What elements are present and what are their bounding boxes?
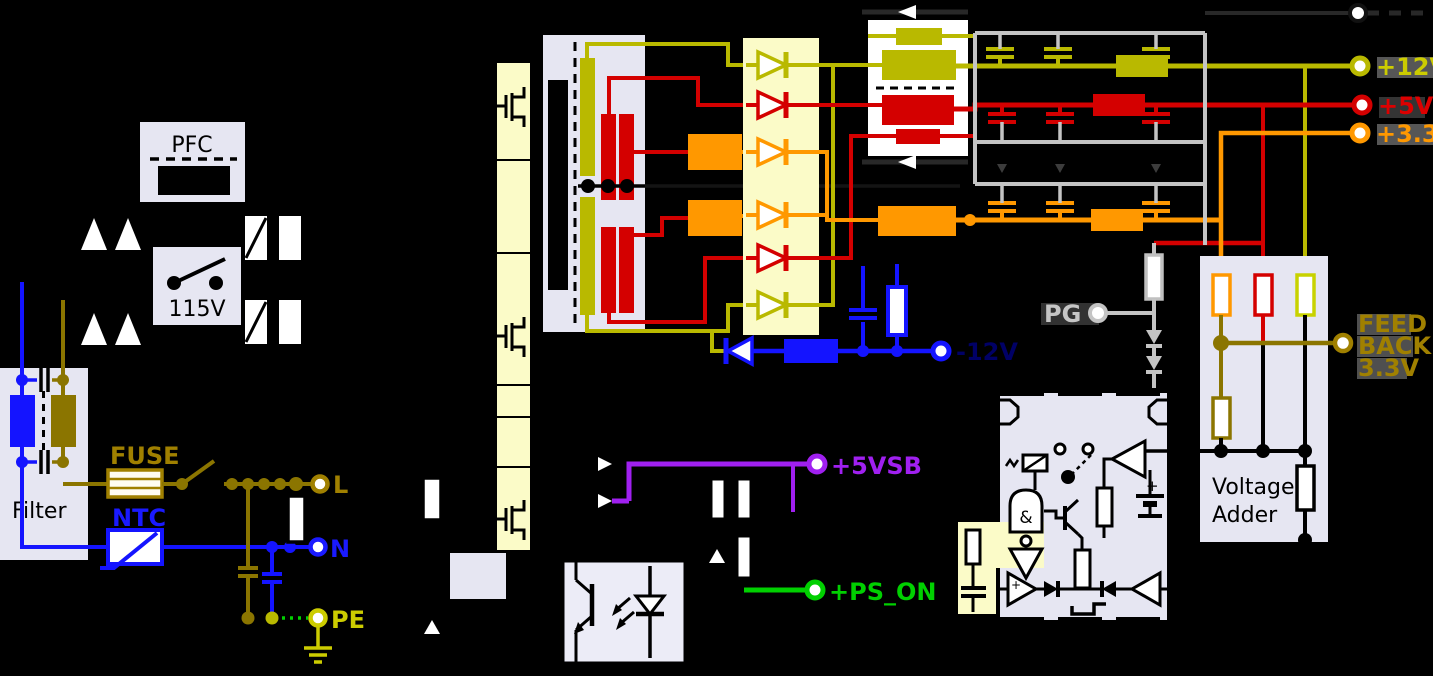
secondary-12v-winding bbox=[580, 197, 595, 315]
p5-label: +5V bbox=[1378, 92, 1433, 120]
terminal-3v3 bbox=[1352, 125, 1368, 141]
feedback-label-3: 3.3V bbox=[1358, 354, 1420, 382]
ground-symbol-icon bbox=[304, 626, 332, 662]
adder-label-1: Voltage bbox=[1212, 475, 1295, 500]
p3v3-label: +3.3V bbox=[1376, 120, 1433, 148]
voltage-selector-switch: 115V bbox=[153, 247, 241, 325]
ps-on-label: +PS_ON bbox=[829, 578, 936, 606]
emi-filter-section: Filter bbox=[0, 282, 88, 560]
ntc-label: NTC bbox=[112, 504, 166, 532]
resistor-neg12 bbox=[888, 287, 906, 335]
resistor bbox=[711, 479, 725, 519]
resistor bbox=[737, 479, 751, 519]
optocoupler bbox=[562, 560, 686, 664]
adder-resistor-12v bbox=[1297, 275, 1314, 315]
atx-psu-schematic: Filter PFC 115V FUSE bbox=[0, 0, 1433, 676]
standby-label: +5VSB bbox=[831, 452, 922, 480]
arrow-left-icon bbox=[898, 155, 916, 169]
terminal-gnd bbox=[1350, 5, 1366, 21]
rail-labels: +12V +5V +3.3V bbox=[1376, 53, 1433, 148]
timing-resistor bbox=[966, 530, 980, 564]
magamp-choke bbox=[688, 200, 742, 236]
primary-switch-strip bbox=[497, 63, 530, 550]
standby-transformer bbox=[450, 553, 506, 599]
current-arrow-icon bbox=[997, 164, 1161, 173]
filter-choke-olive bbox=[51, 395, 76, 447]
pfc-block: PFC bbox=[140, 122, 245, 202]
and-gate-label: & bbox=[1019, 508, 1032, 528]
terminal-feedback bbox=[1335, 335, 1351, 351]
inductor-5v bbox=[1093, 94, 1145, 116]
adder-resistor-gnd bbox=[1297, 466, 1314, 510]
voltage-adder: Voltage Adder bbox=[1165, 256, 1351, 547]
adder-label-2: Adder bbox=[1212, 503, 1278, 528]
fuse-and-line: FUSE L bbox=[63, 442, 348, 499]
bridge-diode-icon bbox=[81, 218, 107, 250]
terminal-line bbox=[313, 477, 328, 492]
terminal-pg bbox=[1090, 305, 1106, 321]
terminal-neg12v bbox=[933, 343, 949, 359]
neutral-label: N bbox=[330, 535, 350, 563]
amp-plus: + bbox=[1011, 578, 1021, 592]
feedback-label-group: FEED BACK 3.3V bbox=[1357, 310, 1432, 382]
secondary-5v-winding bbox=[601, 227, 616, 313]
terminal-5v bbox=[1354, 97, 1370, 113]
terminal-ps-on bbox=[807, 582, 823, 598]
fuse-body bbox=[108, 470, 162, 497]
discharge-resistor bbox=[288, 496, 305, 542]
reference-plus: + bbox=[1146, 477, 1159, 495]
filter-choke-blue bbox=[10, 395, 35, 447]
power-good-network: PG bbox=[1041, 243, 1162, 388]
secondary-5v-winding bbox=[619, 227, 634, 313]
fuse-label: FUSE bbox=[110, 442, 180, 470]
pg-resistor bbox=[1146, 255, 1162, 299]
magamp-choke bbox=[688, 134, 742, 170]
terminal-12v bbox=[1352, 58, 1368, 74]
terminal-neutral bbox=[311, 540, 326, 555]
inductor-neg12 bbox=[784, 339, 838, 363]
pwm-controller-ic: + & + bbox=[958, 393, 1167, 620]
neg12v-label: -12V bbox=[956, 338, 1018, 366]
arrow-up-icon bbox=[424, 620, 440, 634]
ic-resistor bbox=[1075, 550, 1090, 588]
adder-resistor-fb bbox=[1213, 398, 1230, 438]
ic-resistor bbox=[1097, 488, 1112, 526]
arrow-right-icon bbox=[598, 494, 612, 508]
line-label: L bbox=[333, 471, 348, 499]
terminal-earth bbox=[311, 611, 326, 626]
primary-winding bbox=[548, 80, 568, 290]
bridge-diode-icon bbox=[115, 218, 141, 250]
arrow-up-icon bbox=[709, 549, 725, 563]
terminal-5vsb bbox=[809, 456, 825, 472]
p12-label: +12V bbox=[1376, 53, 1433, 81]
voltage-switch-label: 115V bbox=[168, 297, 225, 322]
contact-icon bbox=[1083, 444, 1093, 454]
bulk-capacitors bbox=[243, 214, 303, 346]
arrow-left-icon bbox=[898, 5, 916, 19]
pg-zener-icon bbox=[1146, 356, 1162, 370]
output-choke bbox=[862, 5, 968, 169]
standby-resistor bbox=[423, 478, 441, 520]
resistor bbox=[737, 536, 751, 578]
choke-3v3 bbox=[878, 206, 956, 236]
adder-resistor-5v bbox=[1255, 275, 1272, 315]
diode-neg12-icon bbox=[728, 338, 752, 364]
earth-label: PE bbox=[331, 606, 365, 634]
arrow-right-icon bbox=[598, 457, 612, 471]
pfc-label: PFC bbox=[171, 133, 212, 158]
power-switch-blade bbox=[182, 461, 214, 484]
contact-icon bbox=[1055, 444, 1065, 454]
bridge-diode-icon bbox=[115, 313, 141, 345]
pg-zener-icon bbox=[1146, 330, 1162, 344]
secondary-12v-winding bbox=[580, 58, 595, 176]
pg-label: PG bbox=[1044, 300, 1081, 328]
gnd-terminal-group bbox=[1205, 5, 1433, 21]
bridge-rectifier bbox=[81, 218, 141, 345]
pfc-inductor bbox=[158, 166, 230, 195]
bridge-diode-icon bbox=[81, 313, 107, 345]
rectifier-diode-bank bbox=[743, 38, 819, 335]
adder-resistor-3v3 bbox=[1213, 275, 1230, 315]
inductor-3v3 bbox=[1091, 209, 1143, 231]
